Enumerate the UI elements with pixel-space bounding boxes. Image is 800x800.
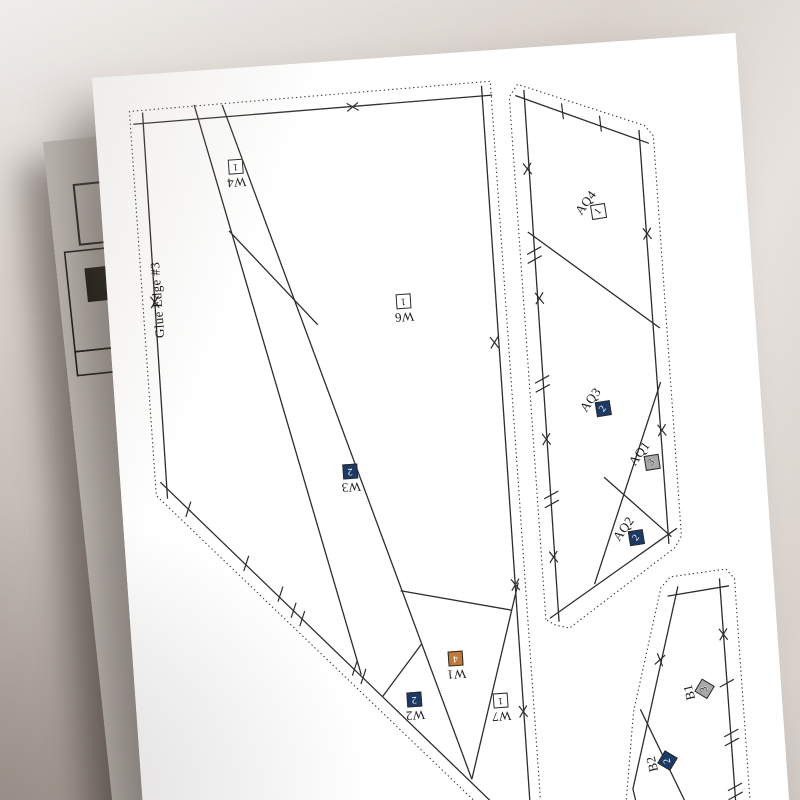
aq-piece-cut-line xyxy=(509,75,688,630)
piece-id: W4 xyxy=(227,176,247,190)
fabric-number-box: 2 xyxy=(406,692,422,708)
piece-id: B2 xyxy=(644,755,660,773)
piece-id: W6 xyxy=(394,310,414,324)
piece-id: W7 xyxy=(491,709,511,723)
piece-label-w1: W1 4 xyxy=(445,650,466,681)
photo-of-pattern-pages: Glue Edge #3 W4 1 W6 1 W3 2 W1 4 W2 2 W7… xyxy=(0,0,800,800)
piece-label-w3: W3 2 xyxy=(340,463,361,494)
piece-id: W2 xyxy=(405,708,425,722)
fabric-number-box: 1 xyxy=(492,693,508,709)
b-piece-cut-line xyxy=(598,568,759,800)
fabric-number-box: 2 xyxy=(342,463,358,479)
piece-label-w2: W2 2 xyxy=(404,691,425,722)
piece-id: B1 xyxy=(681,683,697,701)
piece-label-w4: W4 1 xyxy=(225,159,246,190)
pattern-sheet-main: Glue Edge #3 W4 1 W6 1 W3 2 W1 4 W2 2 W7… xyxy=(92,33,800,800)
fabric-number-box: 4 xyxy=(447,651,463,667)
fabric-number-box: 1 xyxy=(228,159,244,175)
fabric-number-box: 2 xyxy=(594,400,611,417)
piece-label-w7: W7 1 xyxy=(490,692,511,723)
fabric-number-box: 1 xyxy=(395,293,411,309)
fabric-number-box: 1 xyxy=(590,203,607,220)
fabric-number-box: 3 xyxy=(643,454,660,471)
piece-id: W3 xyxy=(341,480,361,494)
fabric-number-box: 2 xyxy=(628,529,645,546)
piece-id: W1 xyxy=(446,667,466,681)
piece-label-w6: W6 1 xyxy=(393,293,414,324)
w-piece-cut-line xyxy=(129,81,551,800)
